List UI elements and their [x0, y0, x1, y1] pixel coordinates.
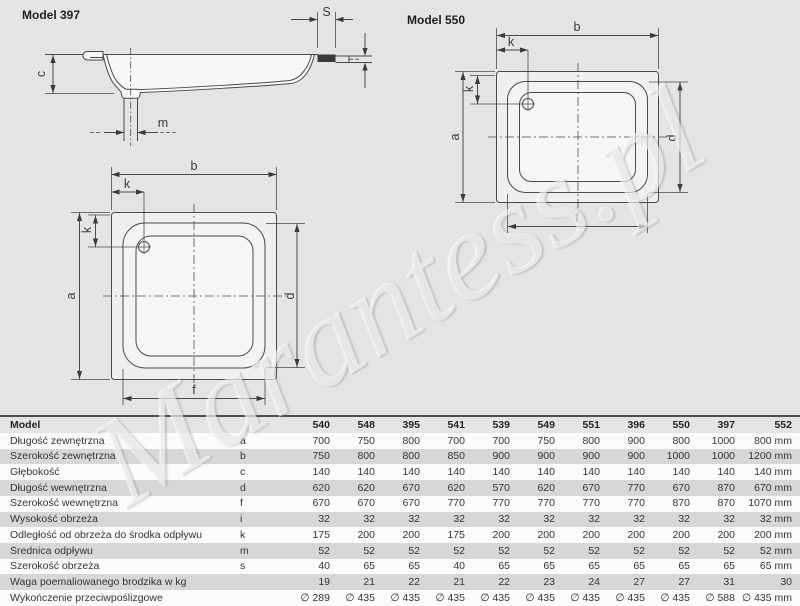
row-value: 870 [645, 498, 690, 509]
row-value: 65 [645, 561, 690, 572]
row-value: 40 [420, 561, 465, 572]
row-value: 32 [265, 514, 330, 525]
row-symbol: a [240, 436, 265, 447]
row-label: Głębokość [0, 467, 240, 478]
row-value: 175 [420, 530, 465, 541]
dim-label-s: S [322, 5, 330, 19]
row-value: 620 [330, 483, 375, 494]
header-model-number: 540 [265, 420, 330, 431]
row-value: 21 [330, 577, 375, 588]
row-label: Szerokość wewnętrzna [0, 498, 240, 509]
row-value: 32 [465, 514, 510, 525]
row-value: 65 [555, 561, 600, 572]
rect-dim-a: a [448, 133, 462, 140]
row-value: 900 [600, 451, 645, 462]
row-value: 140 [420, 467, 465, 478]
row-value: 27 [645, 577, 690, 588]
row-label: Długość zewnętrzna [0, 436, 240, 447]
row-value: 24 [555, 577, 600, 588]
row-value: 140 [645, 467, 690, 478]
row-value: 800 mm [735, 436, 800, 447]
row-value: 32 [555, 514, 600, 525]
row-value: 65 [465, 561, 510, 572]
row-value: 850 [420, 451, 465, 462]
row-label: Wykończenie przeciwpoślizgowe [0, 593, 240, 604]
model-550-title: Model 550 [407, 13, 465, 27]
row-value: 52 [265, 546, 330, 557]
square-dim-a: a [64, 292, 78, 299]
header-model-number: 395 [375, 420, 420, 431]
row-value: 620 [420, 483, 465, 494]
row-value: 570 [465, 483, 510, 494]
row-value: 700 [420, 436, 465, 447]
row-value: 200 [555, 530, 600, 541]
rect-dim-b: b [574, 20, 581, 34]
row-value: 22 [375, 577, 420, 588]
row-value: 52 [330, 546, 375, 557]
row-value: 700 [465, 436, 510, 447]
row-value: 22 [465, 577, 510, 588]
row-value: 52 [690, 546, 735, 557]
row-value: 670 [375, 498, 420, 509]
row-value: 32 [420, 514, 465, 525]
row-value: 870 [690, 483, 735, 494]
row-value: 200 [510, 530, 555, 541]
row-value: 200 [330, 530, 375, 541]
table-header-row: Model540548395541539549551396550397552 [0, 417, 800, 433]
model-397-title: Model 397 [22, 8, 80, 22]
header-model-number: 550 [645, 420, 690, 431]
row-value: 32 [375, 514, 420, 525]
row-value: 870 [690, 498, 735, 509]
row-value: 1000 [690, 451, 735, 462]
row-value: 140 [510, 467, 555, 478]
header-model-label: Model [0, 420, 240, 431]
row-value: 770 [510, 498, 555, 509]
row-symbol: b [240, 451, 265, 462]
row-value: 32 [645, 514, 690, 525]
row-value: 770 [600, 483, 645, 494]
row-symbol: m [240, 546, 265, 557]
row-symbol: c [240, 467, 265, 478]
dim-label-m: m [158, 116, 168, 130]
rect-dim-f: f [575, 211, 579, 225]
row-value: 65 [600, 561, 645, 572]
row-value: 140 [375, 467, 420, 478]
row-value: 670 [330, 498, 375, 509]
row-value: 140 [465, 467, 510, 478]
row-value: 65 [330, 561, 375, 572]
row-value: 52 [645, 546, 690, 557]
row-value: 52 [465, 546, 510, 557]
square-tray-drawing [71, 167, 305, 405]
row-value: 1200 mm [735, 451, 800, 462]
row-value: 175 [265, 530, 330, 541]
table-row: Szerokość wewnętrznaf6706706707707707707… [0, 496, 800, 512]
row-value: 65 [690, 561, 735, 572]
header-model-number: 551 [555, 420, 600, 431]
row-value: 1070 mm [735, 498, 800, 509]
row-value: 770 [555, 498, 600, 509]
header-model-number: 539 [465, 420, 510, 431]
row-value: 52 [420, 546, 465, 557]
row-value: ∅ 588 [690, 593, 735, 604]
row-value: 770 [420, 498, 465, 509]
table-row: Głębokośćc140140140140140140140140140140… [0, 464, 800, 480]
row-value: 52 mm [735, 546, 800, 557]
row-value: 32 [690, 514, 735, 525]
square-dim-b: b [191, 159, 198, 173]
header-model-number: 548 [330, 420, 375, 431]
row-value: 900 [510, 451, 555, 462]
row-value: 200 [375, 530, 420, 541]
row-value: 620 [265, 483, 330, 494]
row-value: 750 [510, 436, 555, 447]
row-value: 200 [645, 530, 690, 541]
square-dim-f: f [192, 383, 196, 397]
row-value: 30 [735, 577, 800, 588]
row-value: ∅ 435 [330, 593, 375, 604]
row-value: 27 [600, 577, 645, 588]
row-value: ∅ 435 mm [735, 593, 800, 604]
row-value: ∅ 435 [420, 593, 465, 604]
row-value: 52 [555, 546, 600, 557]
row-symbol: k [240, 530, 265, 541]
row-value: 140 [690, 467, 735, 478]
table-row: Szerokość obrzeżas4065654065656565656565… [0, 559, 800, 575]
row-value: 900 [555, 451, 600, 462]
header-model-number: 541 [420, 420, 465, 431]
row-label: Waga poemaliowanego brodzika w kg [0, 577, 240, 588]
row-value: 52 [510, 546, 555, 557]
row-value: 770 [600, 498, 645, 509]
row-value: ∅ 435 [555, 593, 600, 604]
row-value: ∅ 289 [265, 593, 330, 604]
row-value: 1000 [690, 436, 735, 447]
rect-tray-drawing [455, 28, 688, 233]
table-row: Odległość od obrzeża do środka odpływuk1… [0, 527, 800, 543]
row-label: Szerokość obrzeża [0, 561, 240, 572]
row-value: 140 [265, 467, 330, 478]
row-label: Szerokość zewnętrzna [0, 451, 240, 462]
row-value: 200 [690, 530, 735, 541]
row-value: 200 [600, 530, 645, 541]
table-row: Wykończenie przeciwpoślizgowe∅ 289∅ 435∅… [0, 590, 800, 606]
row-value: 31 [690, 577, 735, 588]
row-symbol: d [240, 483, 265, 494]
row-value: 140 [600, 467, 645, 478]
row-value: 19 [265, 577, 330, 588]
row-value: ∅ 435 [600, 593, 645, 604]
row-value: 200 [465, 530, 510, 541]
row-value: ∅ 435 [510, 593, 555, 604]
row-value: 670 [555, 483, 600, 494]
row-value: 21 [420, 577, 465, 588]
spec-sheet: Model 397 Model 550 [0, 0, 800, 606]
row-value: 670 [645, 483, 690, 494]
row-value: 1000 [645, 451, 690, 462]
row-label: Długość wewnętrzna [0, 483, 240, 494]
table-row: Szerokość zewnętrznab7508008008509009009… [0, 449, 800, 465]
row-value: 620 [510, 483, 555, 494]
header-model-number: 552 [735, 420, 800, 431]
table-row: Waga poemaliowanego brodzika w kg1921222… [0, 574, 800, 590]
table-row: Wysokość obrzeżai3232323232323232323232 … [0, 512, 800, 528]
row-label: Odległość od obrzeża do środka odpływu [0, 530, 240, 541]
row-value: 800 [555, 436, 600, 447]
row-symbol: f [240, 498, 265, 509]
row-value: 52 [375, 546, 420, 557]
square-dim-k-left: k [80, 226, 94, 233]
row-value: ∅ 435 [465, 593, 510, 604]
row-symbol: s [240, 561, 265, 572]
table-row: Średnica odpływum5252525252525252525252 … [0, 543, 800, 559]
rect-dim-k-top: k [508, 35, 515, 49]
row-value: 800 [375, 436, 420, 447]
table-row: Długość zewnętrznaa700750800700700750800… [0, 433, 800, 449]
header-model-number: 549 [510, 420, 555, 431]
side-view-drawing [45, 12, 372, 146]
rect-dim-k-left: k [462, 85, 476, 92]
table-row: Długość wewnętrznad620620670620570620670… [0, 480, 800, 496]
row-value: 32 mm [735, 514, 800, 525]
row-value: ∅ 435 [645, 593, 690, 604]
row-value: 32 [330, 514, 375, 525]
row-value: 670 [375, 483, 420, 494]
row-value: 750 [330, 436, 375, 447]
row-value: 670 [265, 498, 330, 509]
row-value: 140 mm [735, 467, 800, 478]
square-dim-d: d [283, 292, 297, 299]
row-value: 750 [265, 451, 330, 462]
row-value: 700 [265, 436, 330, 447]
row-value: 40 [265, 561, 330, 572]
row-value: 140 [330, 467, 375, 478]
row-value: 52 [600, 546, 645, 557]
row-value: 670 mm [735, 483, 800, 494]
header-model-number: 396 [600, 420, 645, 431]
row-symbol: i [240, 514, 265, 525]
row-label: Wysokość obrzeża [0, 514, 240, 525]
spec-table: Model540548395541539549551396550397552Dł… [0, 415, 800, 606]
row-value: 65 mm [735, 561, 800, 572]
row-value: 65 [510, 561, 555, 572]
rect-dim-d: d [665, 134, 679, 141]
row-value: ∅ 435 [375, 593, 420, 604]
row-value: 900 [600, 436, 645, 447]
row-value: 900 [465, 451, 510, 462]
row-value: 140 [555, 467, 600, 478]
row-value: 800 [330, 451, 375, 462]
square-dim-k-top: k [124, 177, 131, 191]
header-model-number: 397 [690, 420, 735, 431]
row-value: 32 [600, 514, 645, 525]
row-value: 800 [375, 451, 420, 462]
row-label: Średnica odpływu [0, 546, 240, 557]
row-value: 65 [375, 561, 420, 572]
dim-label-c: c [34, 71, 48, 77]
row-value: 800 [645, 436, 690, 447]
row-value: 200 mm [735, 530, 800, 541]
row-value: 770 [465, 498, 510, 509]
row-value: 23 [510, 577, 555, 588]
row-value: 32 [510, 514, 555, 525]
